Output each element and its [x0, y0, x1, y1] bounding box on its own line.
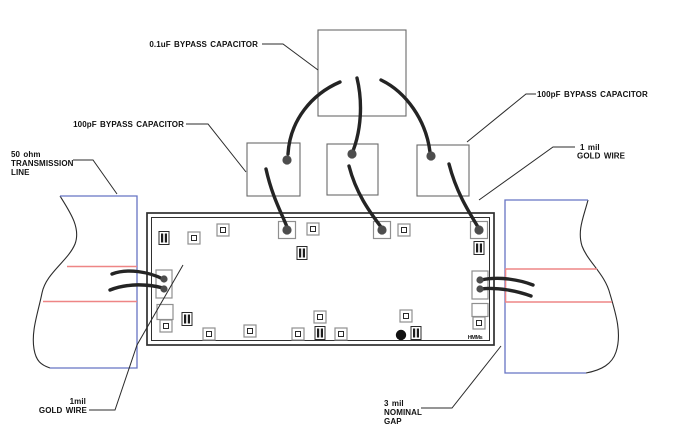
label-goldwire-left-line2: GOLD WIRE — [39, 406, 88, 415]
board-pad-pad — [244, 325, 256, 337]
board-chip-pad — [315, 327, 325, 340]
leader-01uf — [262, 44, 318, 70]
substrate-edge-right — [505, 200, 588, 373]
label-txline-line2: TRANSMISSION — [11, 159, 74, 168]
wire-bond-ball — [282, 225, 291, 234]
board-pad-pad — [292, 328, 304, 340]
wire-bond-ball — [474, 225, 483, 234]
board-pad-pad — [203, 328, 215, 340]
leader-txline — [73, 160, 117, 194]
diagram-canvas: 0.1uF BYPASS CAPACITOR 100pF BYPASS CAPA… — [0, 0, 699, 444]
leader-100pf-left — [186, 124, 246, 172]
label-gap-line1: 3 mil — [384, 399, 404, 408]
transmission-line-right — [505, 200, 618, 373]
assembly-diagram: 0.1uF BYPASS CAPACITOR 100pF BYPASS CAPA… — [0, 0, 699, 444]
substrate-edge-left — [50, 196, 137, 368]
board-pad-pad — [217, 224, 229, 236]
board-chip-pad — [411, 327, 421, 340]
leader-100pf-right — [467, 94, 536, 142]
board-pad-pad — [398, 224, 410, 236]
wire-bond-ball — [160, 275, 167, 282]
board-bond2-pad — [472, 271, 488, 299]
label-gap-line2: NOMINAL — [384, 408, 422, 417]
capacitor-100pf-left — [247, 143, 300, 196]
wire-bond-ball — [377, 225, 386, 234]
wire-bond-ball — [282, 155, 291, 164]
label-goldwire-right-line2: GOLD WIRE — [577, 152, 626, 161]
capacitor-100pf-right — [417, 145, 469, 196]
label-100pf-bypass-capacitor-left: 100pF BYPASS CAPACITOR — [73, 120, 184, 129]
leader-goldwire-right — [479, 147, 575, 200]
board-chip-pad — [474, 242, 484, 255]
wire-bond-ball — [476, 285, 483, 292]
board-pad-pad — [473, 317, 485, 329]
transmission-line-left — [33, 196, 137, 368]
wire-bond-ball — [160, 285, 167, 292]
label-txline-line1: 50 ohm — [11, 150, 41, 159]
wire-bond-ball — [476, 276, 483, 283]
board-square-pad — [472, 304, 488, 317]
board-bond2-pad — [156, 270, 172, 298]
board-chip-pad — [182, 313, 192, 326]
board-pad-pad — [188, 232, 200, 244]
wire-bond-ball — [426, 151, 435, 160]
board-marking: HMMs — [468, 335, 483, 341]
label-gap-line3: GAP — [384, 417, 402, 426]
board-chip-pad — [159, 232, 169, 245]
torn-edge-left — [33, 196, 76, 368]
torn-edge-right — [580, 200, 618, 373]
label-01uf-bypass-capacitor: 0.1uF BYPASS CAPACITOR — [149, 40, 258, 49]
wire-bond-ball — [347, 149, 356, 158]
board-pad-pad — [400, 310, 412, 322]
label-goldwire-left-line1: 1mil — [70, 397, 86, 406]
board-pad-pad — [314, 311, 326, 323]
board-chip-pad — [297, 247, 307, 260]
board-pad-pad — [307, 223, 319, 235]
board-dot-pad — [396, 330, 406, 340]
label-100pf-bypass-capacitor-right: 100pF BYPASS CAPACITOR — [537, 90, 648, 99]
leader-gap — [421, 346, 501, 408]
label-txline-line3: LINE — [11, 168, 30, 177]
board-pad-pad — [160, 320, 172, 332]
board-pad-pad — [335, 328, 347, 340]
